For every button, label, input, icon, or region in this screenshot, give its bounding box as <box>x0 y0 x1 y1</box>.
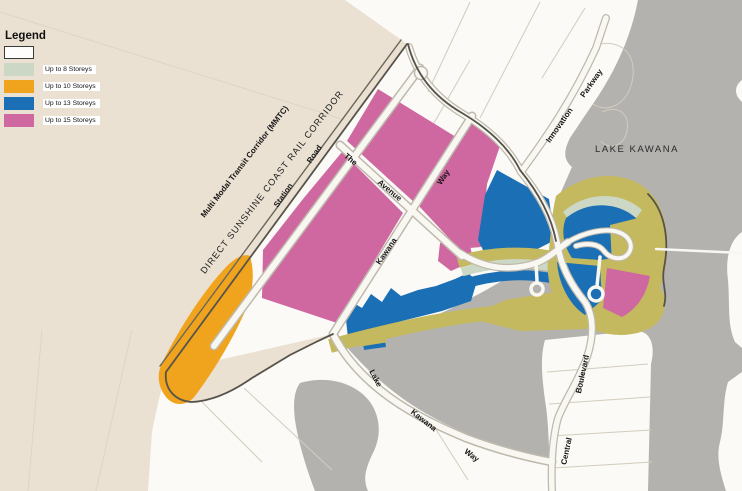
label-lake-kawana: LAKE KAWANA <box>595 144 679 155</box>
legend-title: Legend <box>5 30 100 42</box>
legend-label: Up to 8 Storeys <box>43 65 96 74</box>
legend-row-up-to-10: Up to 10 Storeys <box>4 80 100 93</box>
legend-swatch-boundary <box>4 46 34 59</box>
legend-row-up-to-8: Up to 8 Storeys <box>4 63 100 76</box>
legend-swatch-up-to-15 <box>4 114 34 127</box>
legend-row-up-to-15: Up to 15 Storeys <box>4 114 100 127</box>
legend-label: Up to 10 Storeys <box>43 82 100 91</box>
legend-row-boundary <box>4 46 100 59</box>
legend-row-up-to-13: Up to 13 Storeys <box>4 97 100 110</box>
legend: Legend Up to 8 Storeys Up to 10 Storeys … <box>4 30 100 131</box>
legend-label: Up to 13 Storeys <box>43 99 100 108</box>
plan-map-page: Multi Modal Transit Corridor (MMTC) DIRE… <box>0 0 742 491</box>
legend-swatch-up-to-8 <box>4 63 34 76</box>
legend-swatch-up-to-10 <box>4 80 34 93</box>
legend-label <box>43 48 49 57</box>
kawana-plan-map: Multi Modal Transit Corridor (MMTC) DIRE… <box>0 0 742 491</box>
legend-label: Up to 15 Storeys <box>43 116 100 125</box>
legend-swatch-up-to-13 <box>4 97 34 110</box>
